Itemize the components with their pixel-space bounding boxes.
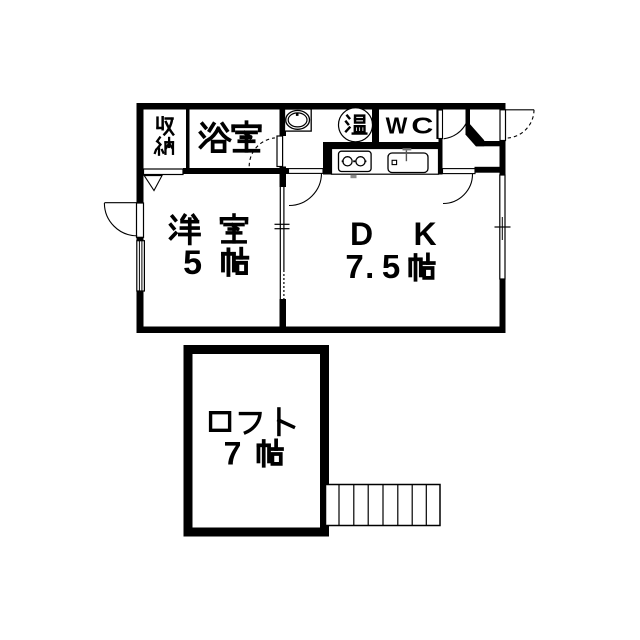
svg-text:D: D (350, 216, 373, 252)
svg-text:5: 5 (183, 244, 202, 282)
svg-text:W: W (386, 113, 408, 139)
svg-text:.: . (365, 248, 374, 285)
svg-text:7: 7 (345, 248, 363, 285)
svg-text:K: K (413, 216, 436, 252)
svg-text:7: 7 (224, 436, 242, 472)
svg-text:5: 5 (382, 248, 400, 285)
svg-text:C: C (411, 113, 433, 139)
